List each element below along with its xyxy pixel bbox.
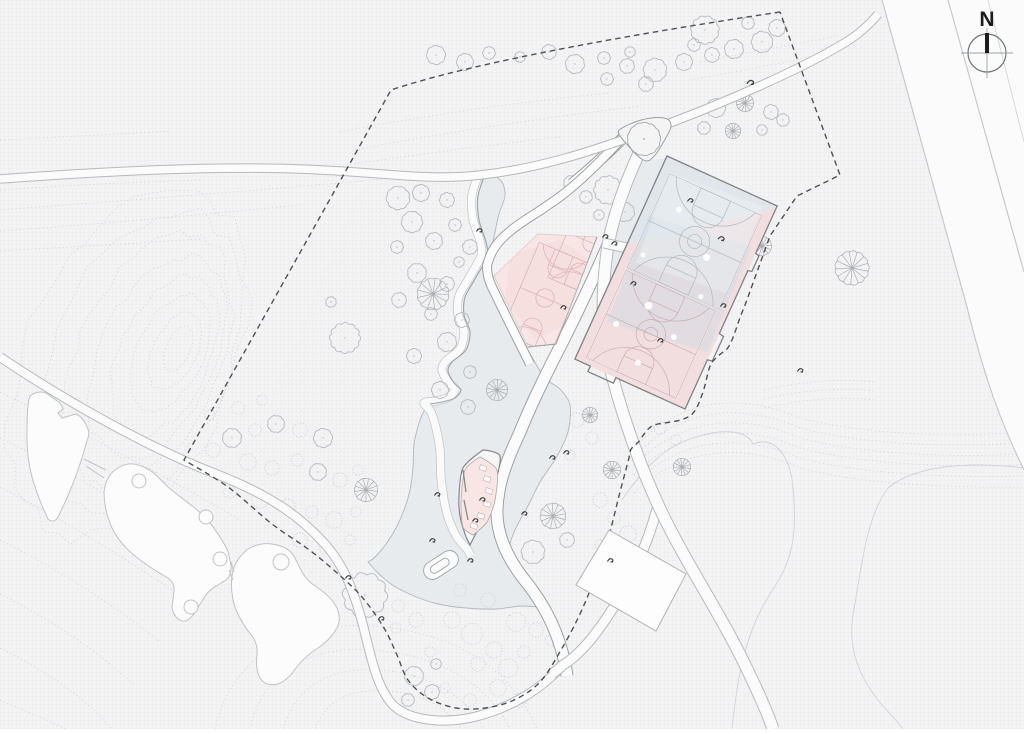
svg-text:N: N bbox=[979, 8, 994, 31]
